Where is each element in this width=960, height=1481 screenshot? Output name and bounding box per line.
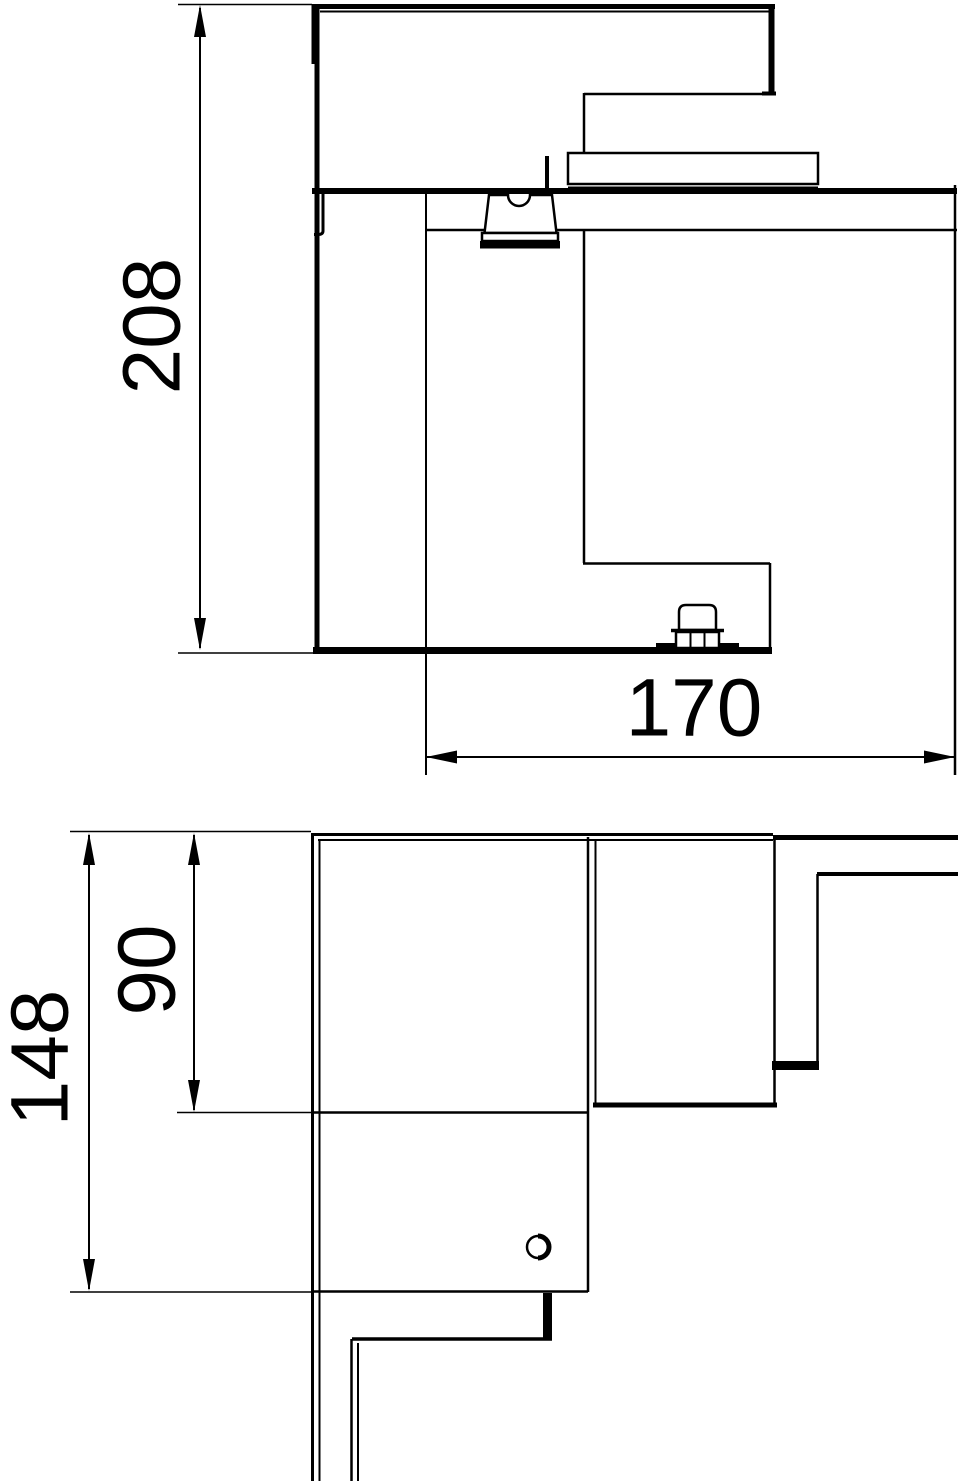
arrowhead-right — [924, 751, 955, 764]
arrowhead-up — [188, 833, 200, 865]
dimension-depth-90: 90 — [102, 833, 312, 1113]
technical-drawing-canvas: 208 170 — [0, 0, 960, 1481]
clip-body — [485, 195, 557, 233]
clamp-dome — [679, 605, 716, 630]
flange-plate — [568, 153, 818, 184]
cover-clip — [480, 195, 560, 249]
arrowhead-down — [83, 1259, 95, 1291]
duct-wall-start-cap — [543, 1293, 552, 1339]
clip-foot-bar — [480, 241, 560, 249]
dim-label-90: 90 — [102, 924, 193, 1015]
bottom-trunking-run — [352, 1293, 553, 1481]
right-trunking-run — [593, 838, 958, 1106]
duct-wall-end-cap — [772, 1061, 819, 1070]
cover-profile — [312, 4, 957, 775]
technical-drawing: 208 170 — [0, 0, 960, 1481]
clip-foot — [482, 233, 558, 241]
dim-label-170: 170 — [626, 663, 763, 754]
dimension-width-170: 170 — [426, 663, 955, 764]
dim-label-148: 148 — [0, 990, 86, 1127]
arrowhead-left — [426, 751, 457, 764]
mounting-clamp — [656, 605, 739, 650]
arrowhead-down — [194, 618, 206, 650]
arrowhead-up — [83, 833, 95, 865]
corner-body — [311, 833, 773, 1481]
arrowhead-up — [194, 5, 206, 37]
side-view: 208 170 — [107, 4, 958, 775]
dimension-depth-148: 148 — [0, 832, 311, 1293]
clamp-foot-left — [656, 643, 677, 650]
clamp-foot-right — [718, 643, 739, 650]
clamp-base — [676, 632, 719, 648]
plan-view: 148 90 — [0, 832, 958, 1481]
arrowhead-down — [188, 1080, 200, 1112]
dim-label-208: 208 — [107, 258, 198, 395]
dimension-height-208: 208 — [107, 5, 314, 654]
